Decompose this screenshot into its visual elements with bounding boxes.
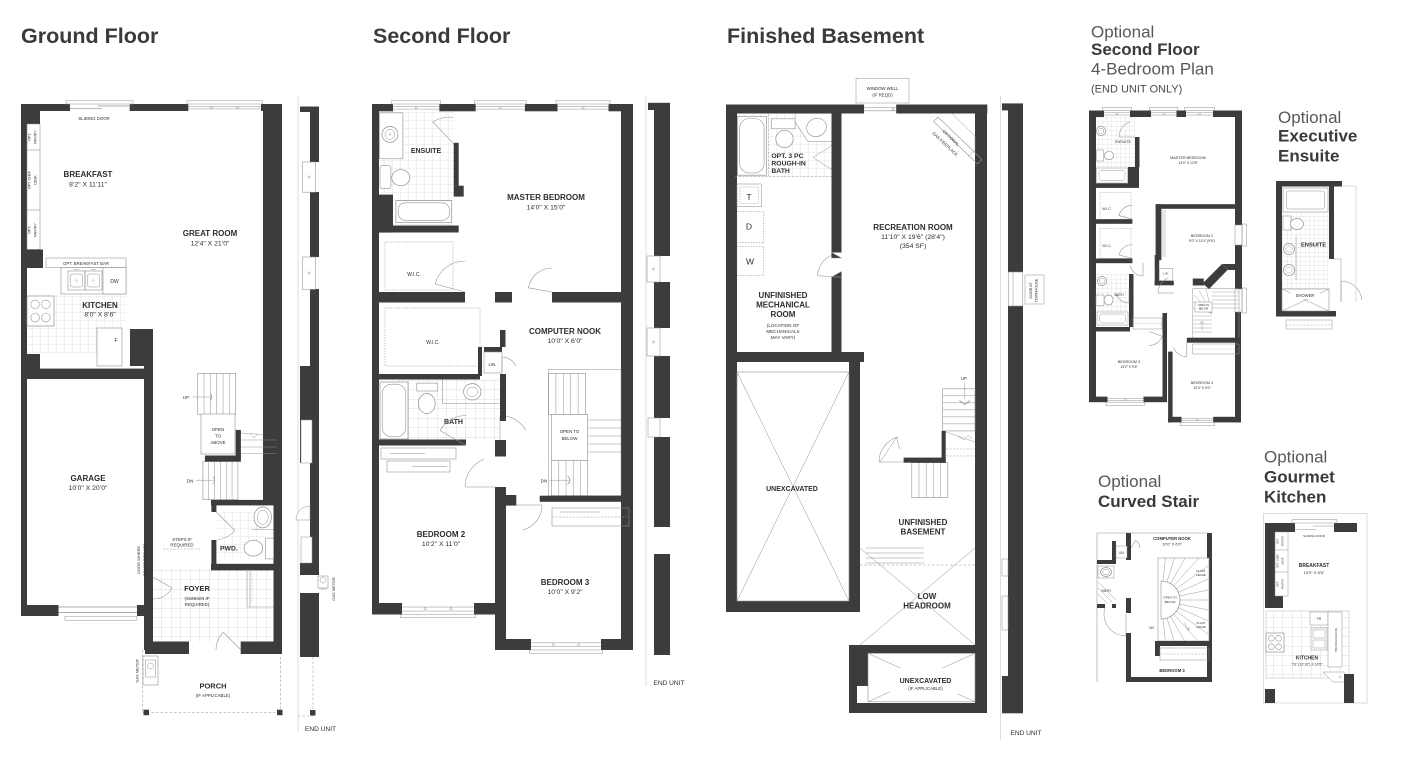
svg-text:Optional: Optional <box>1098 472 1161 491</box>
svg-text:GAS METER: GAS METER <box>135 659 140 683</box>
svg-text:KITCHEN: KITCHEN <box>1296 656 1319 662</box>
svg-text:TOWNHOUSE: TOWNHOUSE <box>1035 278 1039 302</box>
svg-text:(LOCATION OF: (LOCATION OF <box>767 323 800 328</box>
svg-text:13’2” X 9’6”: 13’2” X 9’6” <box>1120 365 1137 369</box>
svg-text:UP: UP <box>961 376 967 381</box>
svg-text:PWD.: PWD. <box>220 546 238 553</box>
svg-text:MECHANICALS: MECHANICALS <box>766 329 799 334</box>
svg-text:RECREATION ROOM: RECREATION ROOM <box>873 223 953 232</box>
svg-text:Kitchen: Kitchen <box>1264 488 1326 507</box>
svg-text:OPT.: OPT. <box>28 226 32 234</box>
svg-text:(END UNIT ONLY): (END UNIT ONLY) <box>1091 84 1182 96</box>
svg-text:Second Floor: Second Floor <box>1091 40 1200 59</box>
svg-text:WINDOW WELL: WINDOW WELL <box>867 86 899 91</box>
svg-text:MASTER BEDROOM: MASTER BEDROOM <box>507 193 585 202</box>
svg-text:LEDGE: LEDGE <box>1196 573 1206 577</box>
svg-text:Finished Basement: Finished Basement <box>727 24 924 48</box>
svg-text:DN: DN <box>1149 626 1154 630</box>
svg-text:Second Floor: Second Floor <box>373 24 511 48</box>
svg-text:PORCH: PORCH <box>199 682 226 691</box>
svg-text:BEDROOM 2: BEDROOM 2 <box>417 530 466 539</box>
svg-text:GARAGE: GARAGE <box>70 474 106 483</box>
svg-text:4-Bedroom Plan: 4-Bedroom Plan <box>1091 60 1214 79</box>
svg-text:BREAKFAST: BREAKFAST <box>1299 563 1330 569</box>
svg-text:DESK: DESK <box>34 175 38 185</box>
svg-text:W.I.C.: W.I.C. <box>1102 207 1111 211</box>
svg-text:BATH: BATH <box>1101 589 1111 593</box>
svg-text:END UNIT: END UNIT <box>305 726 336 733</box>
svg-text:14’0" X 15’0": 14’0" X 15’0" <box>527 205 566 212</box>
svg-text:12’4" X 21’0": 12’4" X 21’0" <box>191 241 230 248</box>
svg-text:UNEXCAVATED: UNEXCAVATED <box>766 486 818 493</box>
svg-text:8’2" X 11’11": 8’2" X 11’11" <box>69 182 107 189</box>
svg-text:PANTRY: PANTRY <box>34 223 38 237</box>
svg-text:OPT. CHEF: OPT. CHEF <box>1276 554 1280 568</box>
svg-text:LEDGE: LEDGE <box>1196 625 1206 629</box>
svg-text:DOOR WHERE: DOOR WHERE <box>136 546 141 574</box>
svg-text:OPT. BREAKFAST BAR: OPT. BREAKFAST BAR <box>63 261 109 266</box>
svg-text:14’0” X 12’8”: 14’0” X 12’8” <box>1178 161 1197 165</box>
svg-text:Executive: Executive <box>1278 127 1357 146</box>
svg-text:(IF APPLICABLE): (IF APPLICABLE) <box>908 686 943 691</box>
svg-text:(IF REQD): (IF REQD) <box>872 93 893 98</box>
svg-text:10’0" X 9’2": 10’0" X 9’2" <box>547 589 583 596</box>
svg-text:W.I.C.: W.I.C. <box>407 272 421 278</box>
svg-text:10’0" X 6’0": 10’0" X 6’0" <box>1162 543 1182 547</box>
svg-text:10’0" X 8’6": 10’0" X 8’6" <box>1304 570 1325 575</box>
svg-text:FR: FR <box>1317 617 1322 621</box>
svg-text:ROOM: ROOM <box>771 310 796 319</box>
svg-text:W.I.C.: W.I.C. <box>1102 244 1111 248</box>
svg-text:SLIDING DOOR: SLIDING DOOR <box>1303 534 1326 538</box>
svg-text:11’10" X 19’6" (28’4"): 11’10" X 19’6" (28’4") <box>881 234 945 241</box>
svg-text:8’0" X 8’6": 8’0" X 8’6" <box>84 312 116 319</box>
svg-text:DN: DN <box>187 478 194 483</box>
svg-text:LIN.: LIN. <box>488 362 496 367</box>
svg-text:OPT. 3 PC: OPT. 3 PC <box>771 153 803 160</box>
svg-text:OPT.: OPT. <box>1276 581 1280 587</box>
svg-text:W: W <box>746 257 754 267</box>
svg-text:GAS METER: GAS METER <box>331 577 336 601</box>
svg-text:ENSUITE: ENSUITE <box>411 148 442 155</box>
svg-text:BEDROOM 4: BEDROOM 4 <box>1191 381 1213 385</box>
svg-text:7’6" (10’10") X 16’5": 7’6" (10’10") X 16’5" <box>1291 663 1323 667</box>
svg-text:ROUGH-IN: ROUGH-IN <box>771 161 805 168</box>
svg-text:10’2" X 11’0": 10’2" X 11’0" <box>422 541 461 548</box>
svg-text:OPEN TO: OPEN TO <box>560 429 580 434</box>
svg-text:W.I.C.: W.I.C. <box>426 340 440 346</box>
svg-text:BREAKFAST: BREAKFAST <box>64 170 113 179</box>
svg-text:PANTRY: PANTRY <box>34 130 38 144</box>
svg-text:COMPUTER NOOK: COMPUTER NOOK <box>529 327 601 336</box>
svg-text:BATH: BATH <box>771 168 789 175</box>
svg-text:Optional: Optional <box>1264 448 1327 467</box>
svg-text:10’0" X 6’0": 10’0" X 6’0" <box>547 338 583 345</box>
svg-text:PANTRY: PANTRY <box>1281 536 1285 547</box>
svg-text:DESK: DESK <box>1281 557 1285 564</box>
svg-text:OPEN: OPEN <box>212 427 224 432</box>
svg-text:F: F <box>114 338 117 344</box>
svg-text:TO: TO <box>215 434 222 439</box>
svg-text:BEDROOM 2: BEDROOM 2 <box>1191 234 1213 238</box>
svg-text:9’0” X 11’4” (9’8”): 9’0” X 11’4” (9’8”) <box>1189 239 1215 243</box>
svg-text:REQUIRED): REQUIRED) <box>185 602 210 607</box>
svg-text:MECHANICAL: MECHANICAL <box>756 301 810 310</box>
svg-text:ENSUITE: ENSUITE <box>1301 243 1326 249</box>
svg-text:OPT. CHEF: OPT. CHEF <box>28 171 32 189</box>
svg-text:REQUIRED: REQUIRED <box>170 543 193 548</box>
svg-text:GREAT ROOM: GREAT ROOM <box>183 229 238 238</box>
svg-text:HEADROOM: HEADROOM <box>903 602 951 611</box>
svg-text:UNEXCAVATED: UNEXCAVATED <box>900 678 952 685</box>
svg-text:D: D <box>746 222 752 232</box>
svg-text:UP: UP <box>183 395 189 400</box>
svg-text:(354 SF): (354 SF) <box>900 243 926 250</box>
svg-text:OPEN TO: OPEN TO <box>1198 303 1210 307</box>
svg-text:LIN.: LIN. <box>1119 551 1125 555</box>
svg-text:SLIDING DOOR: SLIDING DOOR <box>78 116 109 121</box>
svg-text:LIN.: LIN. <box>1163 272 1169 276</box>
svg-text:MASTER BEDROOM: MASTER BEDROOM <box>1170 156 1205 160</box>
svg-text:END UNIT: END UNIT <box>653 680 684 687</box>
svg-text:BEDROOM 3: BEDROOM 3 <box>541 578 590 587</box>
svg-text:BELOW: BELOW <box>1165 600 1176 604</box>
svg-text:UNFINISHED: UNFINISHED <box>759 291 808 300</box>
svg-text:ABOVE: ABOVE <box>210 440 225 445</box>
svg-text:Ground Floor: Ground Floor <box>21 24 159 48</box>
svg-text:SHOWER: SHOWER <box>1296 293 1315 298</box>
svg-text:DN: DN <box>541 478 548 483</box>
svg-text:OPEN TO: OPEN TO <box>1163 596 1177 600</box>
svg-text:UNFINISHED: UNFINISHED <box>899 518 948 527</box>
svg-text:(IF APPLICABLE): (IF APPLICABLE) <box>196 693 231 698</box>
svg-text:Optional: Optional <box>1278 108 1341 127</box>
svg-text:(SUNKEN IF: (SUNKEN IF <box>185 596 210 601</box>
svg-text:FOYER: FOYER <box>184 584 210 593</box>
svg-text:ENSUITE: ENSUITE <box>1115 140 1132 144</box>
svg-text:BATH: BATH <box>1114 293 1124 297</box>
svg-text:DW: DW <box>110 279 119 285</box>
svg-text:MAY VARY): MAY VARY) <box>771 335 796 340</box>
svg-text:OPT.: OPT. <box>28 133 32 141</box>
svg-text:DOOR AT: DOOR AT <box>1029 282 1033 299</box>
svg-text:Gourmet: Gourmet <box>1264 468 1335 487</box>
svg-text:Ensuite: Ensuite <box>1278 146 1339 165</box>
svg-text:COMPUTER NOOK: COMPUTER NOOK <box>1153 536 1191 541</box>
svg-text:TWO-SIDED ACCESS: TWO-SIDED ACCESS <box>1335 628 1338 652</box>
svg-text:BEDROOM 3: BEDROOM 3 <box>1159 668 1185 673</box>
svg-text:GRADE PERMITS: GRADE PERMITS <box>142 543 147 576</box>
svg-text:END UNIT: END UNIT <box>1010 730 1041 737</box>
svg-text:T: T <box>746 192 751 202</box>
svg-text:STEPS IF: STEPS IF <box>172 537 192 542</box>
svg-text:PANTRY: PANTRY <box>1281 579 1285 590</box>
svg-text:BASEMENT: BASEMENT <box>901 528 946 537</box>
svg-text:10’0" X 20’0": 10’0" X 20’0" <box>69 485 108 492</box>
svg-text:Curved Stair: Curved Stair <box>1098 492 1199 511</box>
svg-text:LOW: LOW <box>918 592 937 601</box>
svg-text:KITCHEN: KITCHEN <box>82 301 118 310</box>
svg-text:Optional: Optional <box>1091 23 1154 42</box>
svg-text:10’4” X 9’0”: 10’4” X 9’0” <box>1193 386 1210 390</box>
svg-text:BELOW: BELOW <box>1199 307 1209 311</box>
svg-text:BELOW: BELOW <box>562 436 579 441</box>
svg-text:OPT.: OPT. <box>1276 538 1280 544</box>
svg-text:BEDROOM 3: BEDROOM 3 <box>1118 360 1140 364</box>
